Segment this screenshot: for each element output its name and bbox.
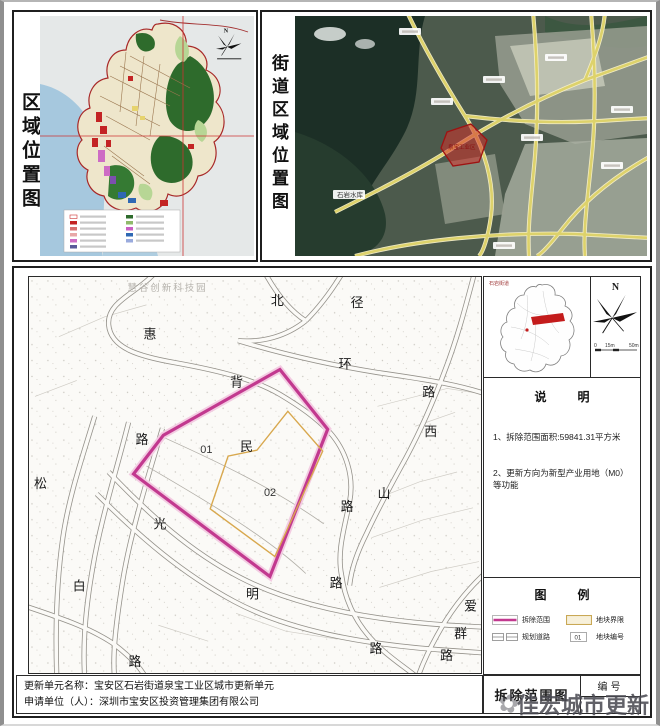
region-map-legend (64, 210, 180, 252)
svg-text:路: 路 (330, 575, 343, 590)
parcel-id-02: 02 (264, 487, 276, 499)
satellite-map-art: 泉宝工业区 石岩水库 (295, 16, 647, 256)
svg-text:路: 路 (129, 654, 142, 669)
notes-section: 说 明 1、拆除范围面积:59841.31平方米 2、更新方向为新型产业用地（M… (484, 378, 640, 578)
svg-text:背: 背 (230, 374, 243, 389)
legend-item-planned-road: 规划道路 (492, 632, 566, 642)
svg-text:松: 松 (34, 476, 47, 491)
satellite-map-figure: 泉宝工业区 石岩水库 (295, 16, 647, 256)
parcel-number-swatch-icon: 01 (566, 632, 592, 642)
demolition-scope-sheet: 慧谷创新科技园 01 02 北 径 惠 环 背 路 路 民 西 山 路 松 (12, 266, 652, 718)
svg-text:径: 径 (351, 295, 364, 310)
sheet-right-column: 石岩街道 N (483, 276, 641, 675)
project-info-strip: 更新单元名称：宝安区石岩街道泉宝工业区城市更新单元 申请单位（人）：深圳市宝安区… (16, 675, 483, 714)
north-label: N (591, 282, 640, 293)
drawing-sheet: 区域位置图 (0, 0, 660, 726)
update-unit-name-label: 更新单元名称： (24, 681, 94, 692)
svg-text:路: 路 (341, 499, 354, 514)
drawing-number-label: 编号 (581, 676, 640, 697)
region-map-figure: N (40, 16, 254, 256)
update-unit-name-value: 宝安区石岩街道泉宝工业区城市更新单元 (94, 681, 274, 692)
legend-item-parcel-number: 01 地块编号 (566, 632, 638, 642)
street-panel-title: 街道区域位置图 (266, 54, 291, 215)
note-update-direction: 2、更新方向为新型产业用地（M0）等功能 (493, 467, 631, 491)
region-panel-title: 区域位置图 (16, 92, 43, 212)
note-demolition-area: 1、拆除范围面积:59841.31平方米 (493, 431, 631, 443)
title-block: 拆除范围图 编号 (483, 675, 641, 714)
svg-text:光: 光 (153, 517, 166, 532)
svg-text:群: 群 (454, 626, 467, 641)
svg-text:01: 01 (575, 636, 582, 642)
district-inset-map: 石岩街道 (484, 277, 591, 377)
svg-text:0: 0 (594, 343, 597, 349)
reservoir-label-chip: 石岩水库 (333, 190, 365, 199)
site-plan-figure: 慧谷创新科技园 01 02 北 径 惠 环 背 路 路 民 西 山 路 松 (28, 276, 482, 674)
svg-text:路: 路 (369, 641, 382, 656)
planned-road-swatch-icon (492, 632, 518, 642)
svg-text:山: 山 (377, 486, 390, 501)
svg-text:北: 北 (271, 293, 284, 308)
svg-text:惠: 惠 (143, 327, 156, 342)
ghost-park-label: 慧谷创新科技园 (128, 282, 208, 294)
update-unit-name-row: 更新单元名称：宝安区石岩街道泉宝工业区城市更新单元 (24, 679, 482, 695)
svg-text:环: 环 (339, 357, 352, 372)
site-plan-art: 慧谷创新科技园 01 02 北 径 惠 环 背 路 路 民 西 山 路 松 (29, 277, 481, 673)
svg-text:明: 明 (246, 586, 259, 601)
applicant-label: 申请单位（人）： (24, 697, 99, 708)
inset-map-art (485, 279, 589, 375)
legend-item-demolition: 拆除范围 (492, 615, 566, 625)
region-map-art: N (40, 16, 254, 256)
svg-text:路: 路 (440, 648, 453, 663)
street-location-panel: 街道区域位置图 (260, 10, 652, 262)
notes-title: 说 明 (493, 388, 631, 405)
scale-bar: 0 15m 50m (593, 342, 639, 356)
drawing-title: 拆除范围图 (484, 676, 581, 713)
svg-text:西: 西 (424, 424, 437, 439)
site-label: 泉宝工业区 (448, 143, 476, 151)
parcel-id-01: 01 (200, 444, 212, 456)
inset-and-compass-row: 石岩街道 N (484, 277, 640, 378)
svg-text:N: N (224, 28, 229, 34)
demolition-swatch-icon (492, 615, 518, 625)
legend-item-parcel-boundary: 地块界限 (566, 615, 638, 625)
reservoir-label: 石岩水库 (337, 190, 364, 199)
compass-cell: N 0 15m 50m (591, 277, 640, 377)
svg-text:路: 路 (422, 384, 435, 399)
applicant-row: 申请单位（人）：深圳市宝安区投资管理集团有限公司 (24, 695, 482, 711)
svg-text:15m: 15m (605, 343, 615, 349)
applicant-value: 深圳市宝安区投资管理集团有限公司 (99, 697, 259, 708)
region-location-panel: 区域位置图 (12, 10, 258, 262)
legend-section: 图 例 拆除范围 地块界限 (484, 578, 640, 674)
north-arrow-icon (593, 293, 639, 337)
svg-text:50m: 50m (629, 343, 639, 349)
drawing-number-cell: 编号 (581, 676, 640, 713)
svg-text:路: 路 (136, 432, 149, 447)
svg-text:白: 白 (73, 578, 86, 593)
legend-title: 图 例 (484, 586, 640, 603)
parcel-boundary-swatch-icon (566, 615, 592, 625)
svg-text:民: 民 (240, 439, 253, 454)
svg-text:爱: 爱 (464, 598, 477, 613)
